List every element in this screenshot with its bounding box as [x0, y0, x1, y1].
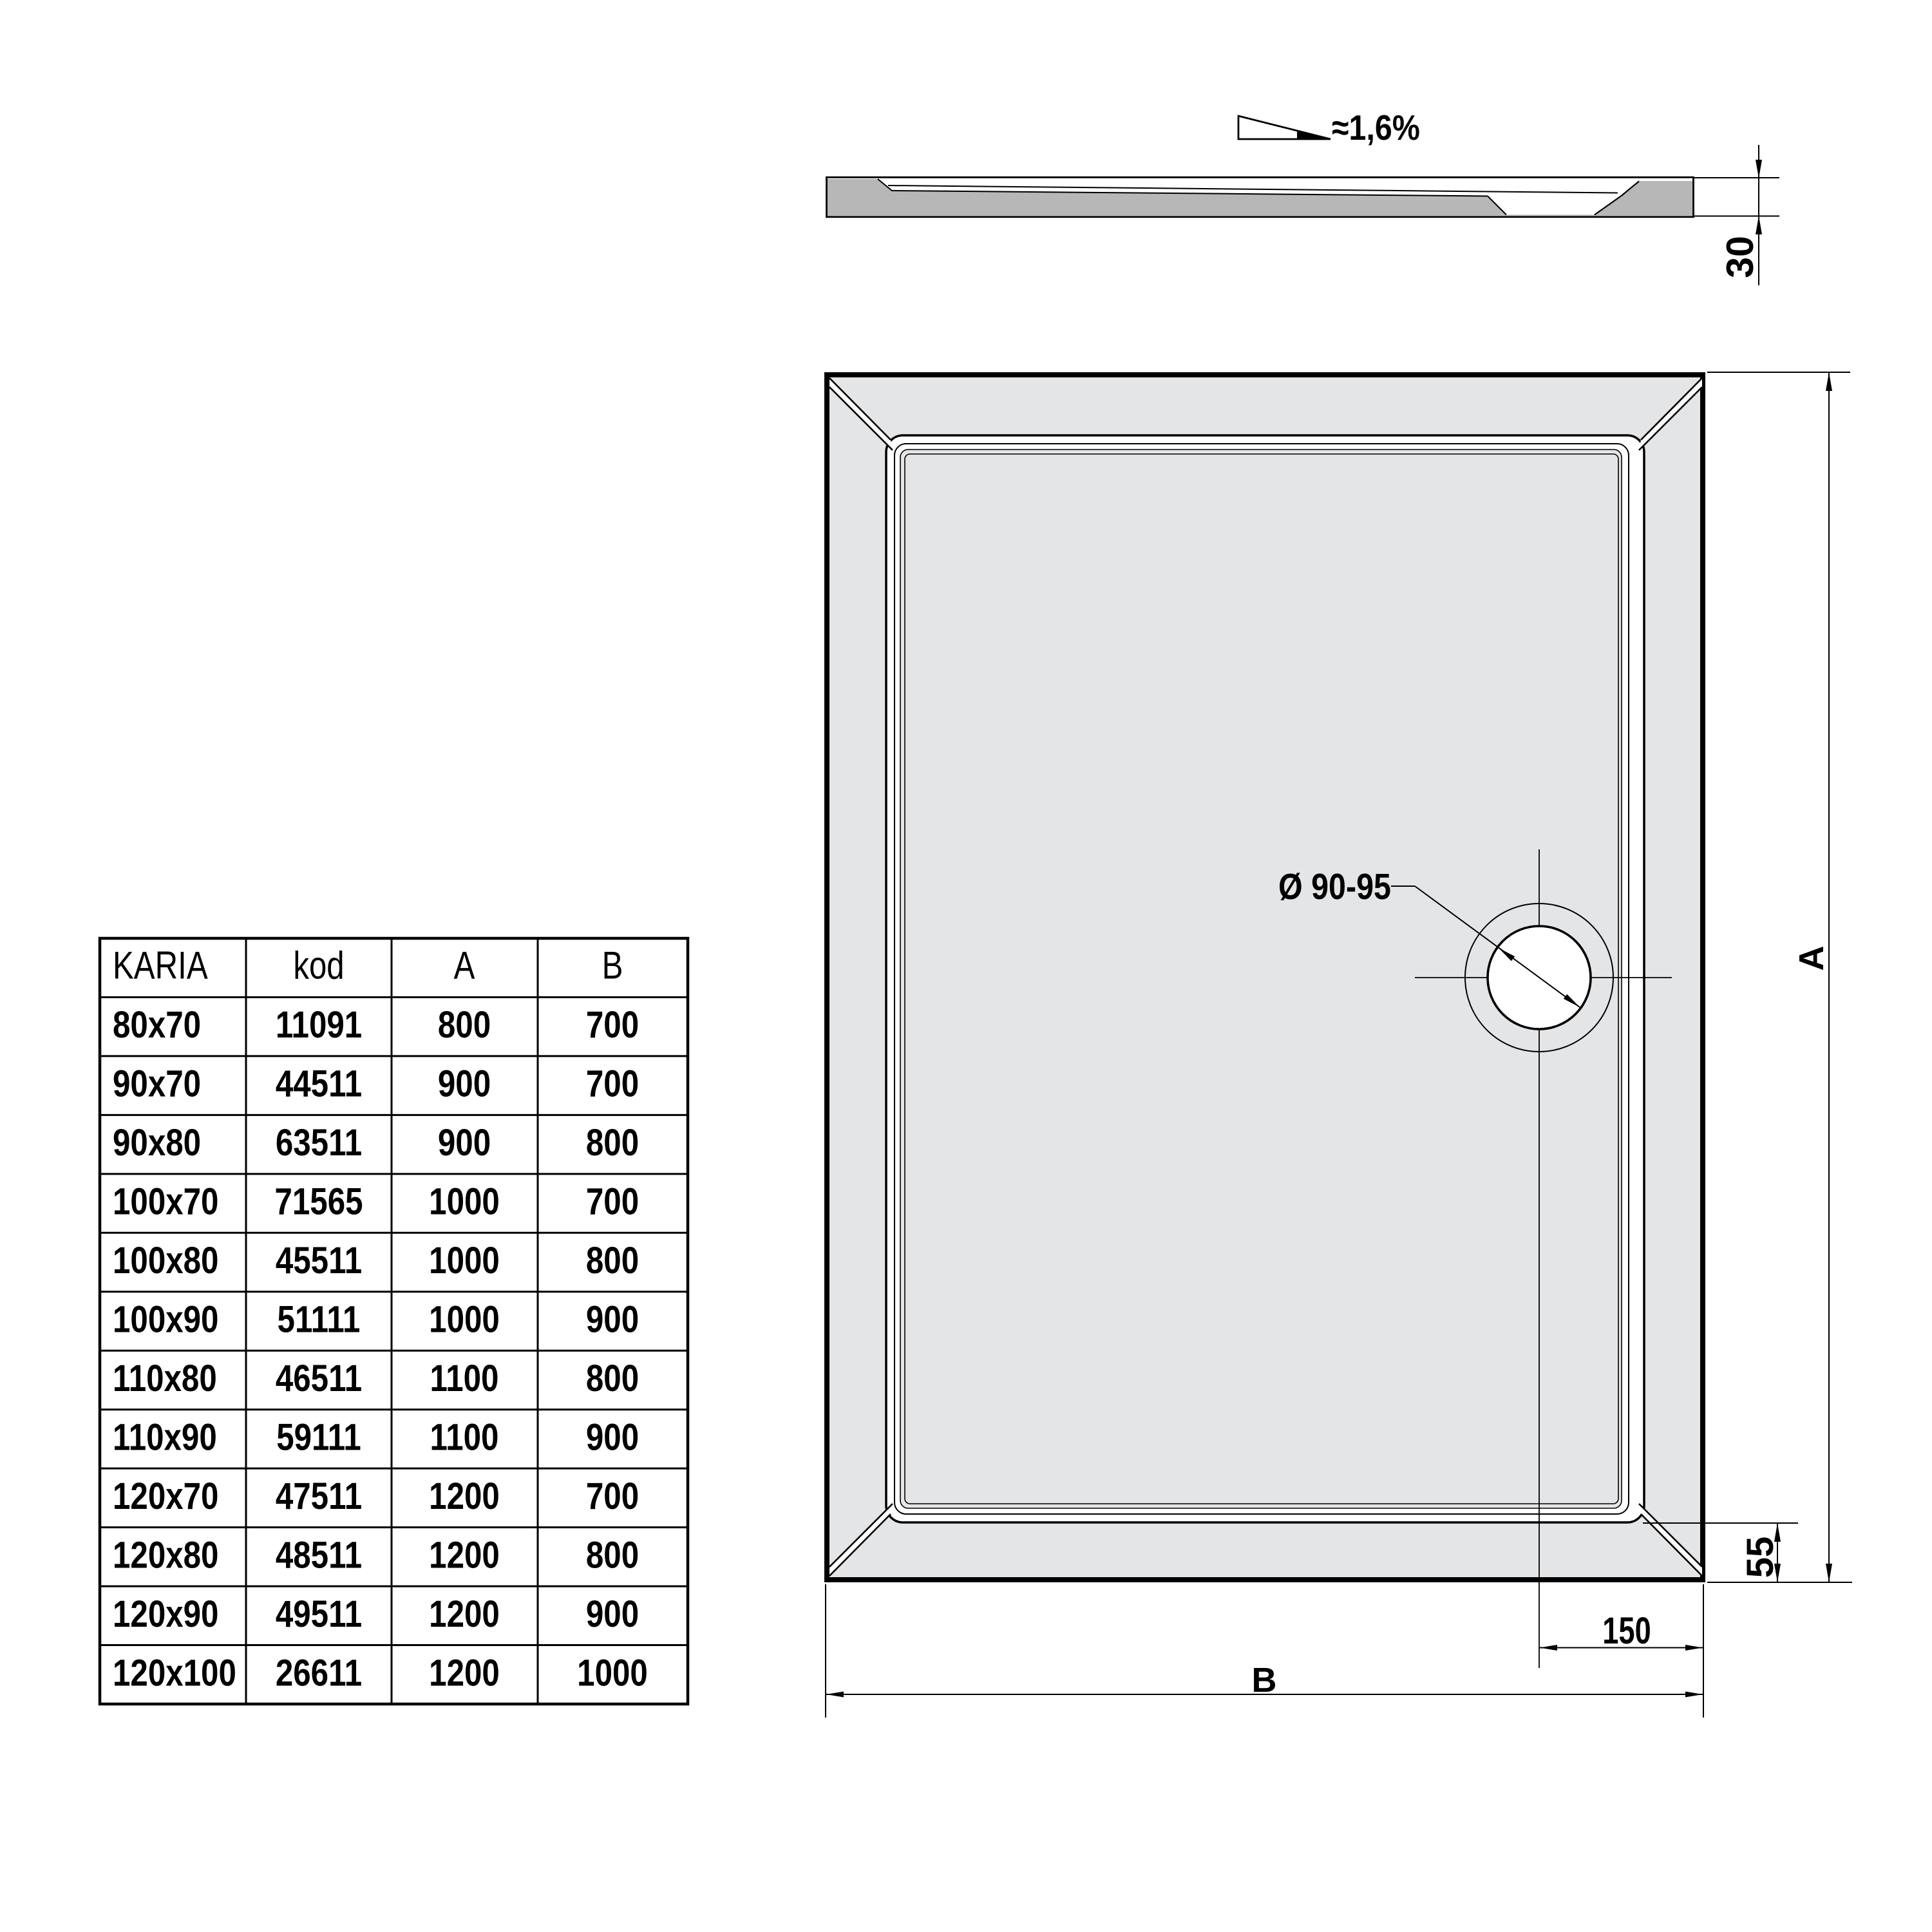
- svg-text:A: A: [1792, 946, 1831, 971]
- svg-text:110x80: 110x80: [113, 1358, 217, 1399]
- svg-text:1000: 1000: [429, 1181, 500, 1223]
- svg-text:700: 700: [586, 1063, 639, 1105]
- svg-text:1100: 1100: [430, 1417, 499, 1459]
- svg-text:11091: 11091: [276, 1004, 362, 1046]
- svg-text:1000: 1000: [577, 1653, 648, 1694]
- svg-text:120x70: 120x70: [113, 1475, 218, 1517]
- svg-text:kod: kod: [293, 943, 344, 987]
- svg-text:900: 900: [586, 1299, 639, 1341]
- svg-text:900: 900: [586, 1593, 639, 1635]
- svg-text:100x70: 100x70: [113, 1181, 218, 1223]
- svg-text:≈1,6%: ≈1,6%: [1332, 108, 1420, 147]
- svg-text:800: 800: [586, 1122, 639, 1164]
- svg-text:120x80: 120x80: [113, 1535, 218, 1577]
- svg-text:48511: 48511: [276, 1535, 362, 1577]
- svg-text:47511: 47511: [276, 1475, 362, 1517]
- svg-text:1200: 1200: [429, 1475, 500, 1517]
- svg-text:30: 30: [1719, 236, 1761, 278]
- svg-text:1200: 1200: [429, 1593, 500, 1635]
- svg-text:700: 700: [586, 1181, 639, 1223]
- svg-text:49511: 49511: [276, 1593, 362, 1635]
- svg-text:1000: 1000: [429, 1299, 500, 1341]
- svg-text:100x90: 100x90: [113, 1299, 218, 1341]
- svg-text:900: 900: [438, 1122, 491, 1164]
- svg-text:59111: 59111: [276, 1417, 361, 1459]
- svg-text:90x80: 90x80: [113, 1122, 201, 1164]
- svg-text:1100: 1100: [430, 1358, 499, 1399]
- svg-text:B: B: [1252, 1661, 1277, 1700]
- svg-text:120x90: 120x90: [113, 1593, 218, 1635]
- svg-text:700: 700: [586, 1475, 639, 1517]
- svg-text:46511: 46511: [276, 1358, 362, 1399]
- svg-text:80x70: 80x70: [113, 1004, 201, 1046]
- svg-text:Ø 90-95: Ø 90-95: [1278, 866, 1391, 907]
- svg-text:100x80: 100x80: [113, 1240, 218, 1282]
- svg-text:71565: 71565: [274, 1181, 363, 1223]
- svg-text:900: 900: [438, 1063, 491, 1105]
- svg-text:800: 800: [438, 1004, 491, 1046]
- svg-text:800: 800: [586, 1535, 639, 1577]
- svg-text:55: 55: [1739, 1537, 1781, 1578]
- svg-text:90x70: 90x70: [113, 1063, 201, 1105]
- svg-text:A: A: [454, 943, 475, 987]
- svg-text:800: 800: [586, 1240, 639, 1282]
- svg-text:150: 150: [1602, 1611, 1651, 1653]
- svg-text:1000: 1000: [429, 1240, 500, 1282]
- svg-text:KARIA: KARIA: [113, 943, 208, 987]
- svg-text:1200: 1200: [429, 1653, 500, 1694]
- svg-text:26611: 26611: [276, 1653, 362, 1694]
- svg-text:44511: 44511: [276, 1063, 362, 1105]
- svg-text:700: 700: [586, 1004, 639, 1046]
- svg-text:45511: 45511: [276, 1240, 362, 1282]
- svg-text:B: B: [602, 943, 623, 987]
- svg-text:63511: 63511: [276, 1122, 362, 1164]
- svg-text:110x90: 110x90: [113, 1417, 217, 1459]
- svg-text:900: 900: [586, 1417, 639, 1459]
- svg-text:1200: 1200: [429, 1535, 500, 1577]
- svg-text:800: 800: [586, 1358, 639, 1399]
- svg-text:51111: 51111: [278, 1299, 361, 1341]
- svg-text:120x100: 120x100: [113, 1653, 236, 1694]
